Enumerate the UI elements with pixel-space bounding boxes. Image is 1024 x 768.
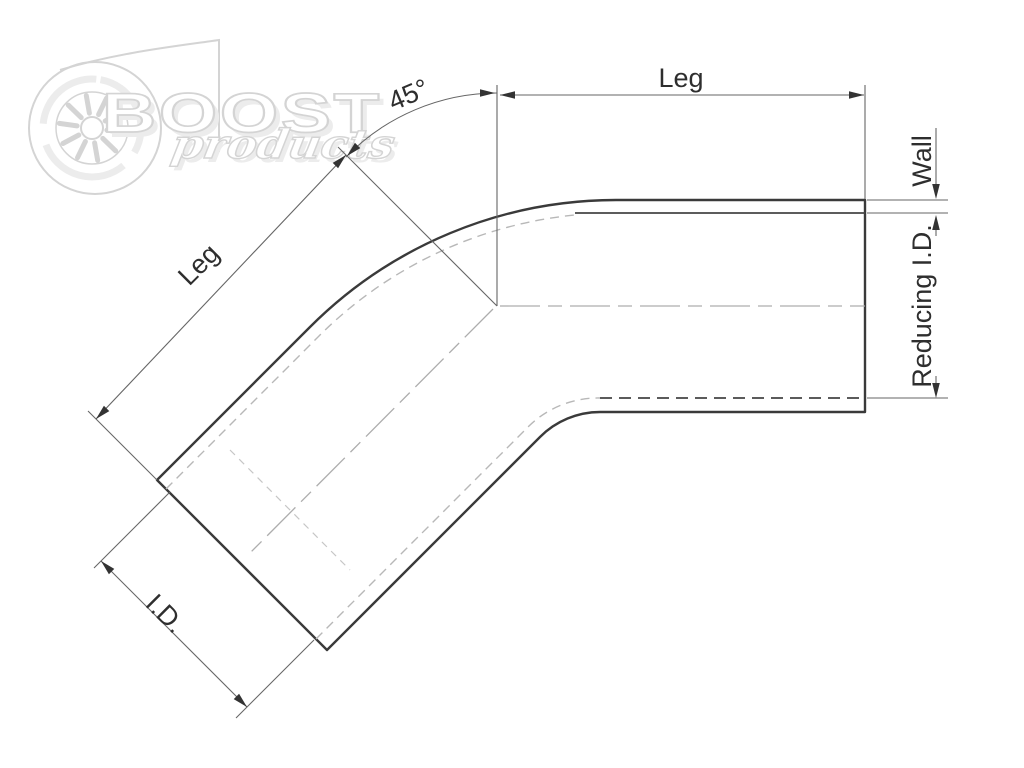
wall-label: Wall (907, 135, 937, 187)
inner-diameter-label: I.D. (140, 588, 191, 639)
wall-and-reducing-id-dimensions: Wall Reducing I.D. (867, 128, 948, 398)
turbo-hub-icon (81, 117, 103, 139)
hose-outer-contour (157, 200, 865, 650)
extension-line (94, 492, 170, 568)
reducer-elbow-diagram: BOOST BOOST products products Leg 45° (0, 0, 1024, 768)
elbow-hose (157, 200, 865, 650)
brand-watermark: BOOST BOOST products products (29, 40, 403, 194)
technical-drawing-page: BOOST BOOST products products Leg 45° (0, 0, 1024, 768)
dimension-arrow-icon (500, 91, 515, 99)
angle-label: 45° (384, 73, 433, 117)
extension-line (236, 640, 314, 718)
extension-line (88, 411, 157, 480)
dimension-arrow-icon (849, 91, 864, 99)
reducing-inner-diameter-label: Reducing I.D. (907, 224, 937, 388)
dimension-arrow-icon (480, 89, 495, 97)
leg-top-label: Leg (658, 63, 703, 93)
leg-diagonal-label: Leg (172, 238, 225, 291)
brand-script: products (168, 120, 398, 168)
